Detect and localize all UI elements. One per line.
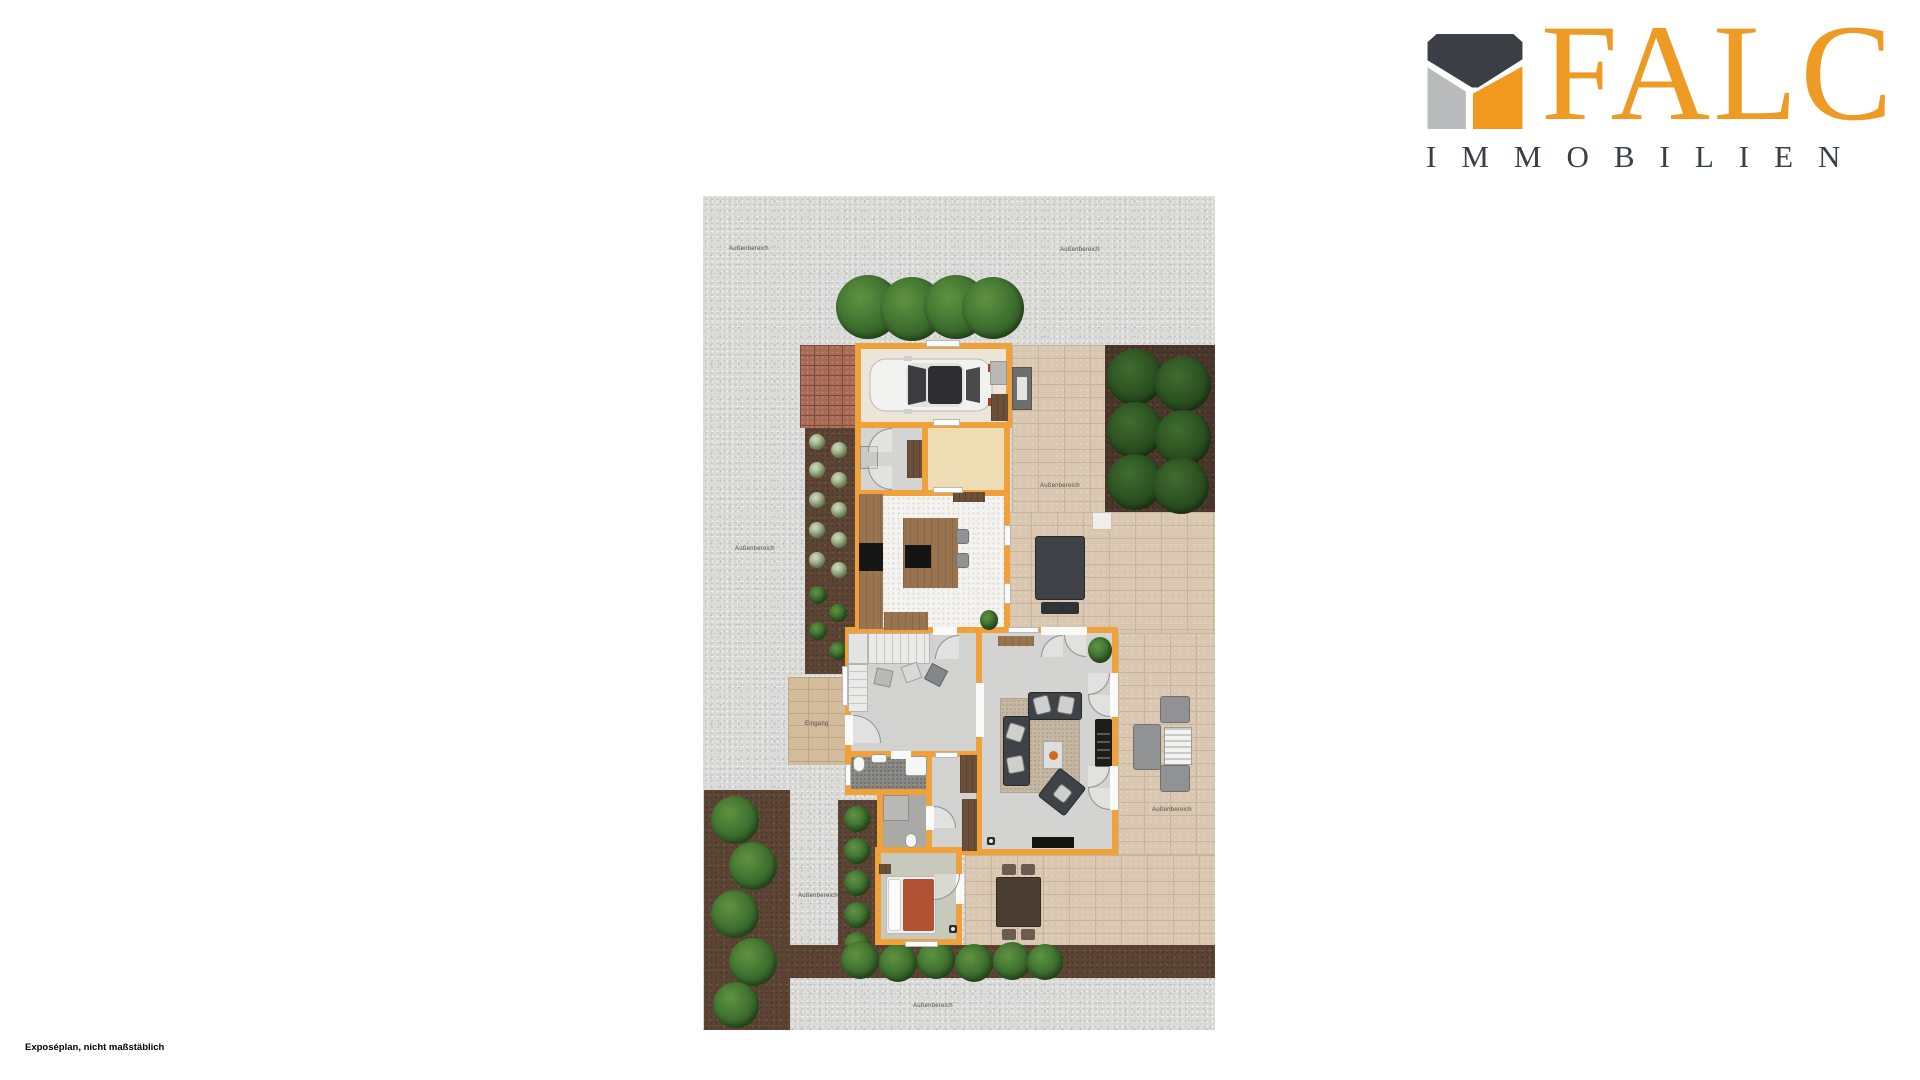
garden-bush-small bbox=[844, 870, 870, 896]
flower-plant bbox=[809, 434, 825, 450]
garden-bush bbox=[729, 842, 777, 890]
doormat-center bbox=[1017, 377, 1027, 400]
window bbox=[933, 487, 963, 493]
sink bbox=[871, 754, 887, 763]
window bbox=[1008, 627, 1039, 633]
garden-bush bbox=[711, 890, 759, 938]
garden-bush bbox=[1107, 349, 1163, 405]
power-outlet bbox=[949, 925, 957, 933]
garden-plant bbox=[829, 604, 847, 622]
area-label: Außenbereich bbox=[1040, 483, 1080, 489]
staircase bbox=[848, 664, 868, 712]
flower-plant bbox=[831, 472, 847, 488]
garden-plant bbox=[809, 622, 827, 640]
area-label: Außenbereich bbox=[1060, 247, 1100, 253]
flower-plant bbox=[809, 462, 825, 478]
flower-plant bbox=[831, 442, 847, 458]
indoor-plant bbox=[1088, 637, 1112, 663]
utility-cabinet bbox=[907, 440, 922, 478]
pouf bbox=[873, 667, 893, 687]
area-label: Außenbereich bbox=[729, 246, 769, 252]
patio-white-tile bbox=[1092, 512, 1112, 530]
hall-door-opening bbox=[933, 627, 957, 635]
patio-dining-table bbox=[996, 877, 1041, 927]
patio-chair bbox=[1021, 864, 1035, 875]
window bbox=[842, 666, 848, 706]
window bbox=[935, 752, 958, 758]
patio-chair bbox=[1021, 929, 1035, 940]
flower-plant bbox=[809, 552, 825, 568]
lounge-chair bbox=[1160, 765, 1190, 792]
front-door-opening bbox=[845, 715, 853, 745]
bath-door-opening bbox=[891, 751, 911, 759]
hall-living-opening bbox=[976, 683, 984, 737]
kitchen-sideboard bbox=[884, 612, 928, 630]
car bbox=[868, 356, 994, 414]
entrance-label: Eingang bbox=[805, 721, 828, 727]
garden-plant bbox=[809, 586, 827, 604]
patio-chair bbox=[1002, 864, 1016, 875]
lounge-table bbox=[1164, 727, 1192, 765]
hedge-bush bbox=[841, 941, 879, 979]
window bbox=[845, 764, 851, 786]
area-label: Außenbereich bbox=[798, 893, 838, 899]
window bbox=[1004, 583, 1011, 604]
power-outlet bbox=[987, 837, 995, 845]
flower-plant bbox=[809, 522, 825, 538]
garden-bush bbox=[1153, 458, 1209, 514]
terrace-door-opening bbox=[1110, 673, 1118, 717]
decor-bowl bbox=[1049, 751, 1058, 760]
wardrobe bbox=[960, 755, 977, 793]
logo-name: FALC bbox=[1541, 4, 1896, 142]
falc-logo-icon bbox=[1422, 31, 1528, 132]
area-label: Außenbereich bbox=[1152, 807, 1192, 813]
tv-lowboard bbox=[1032, 837, 1074, 848]
flower-plant bbox=[831, 502, 847, 518]
indoor-plant bbox=[980, 610, 998, 630]
toilet bbox=[853, 756, 865, 772]
logo-subtitle: IMMOBILIEN bbox=[1426, 139, 1865, 175]
hedge-bush bbox=[993, 942, 1031, 980]
nightstand bbox=[879, 864, 891, 874]
area-label: Außenbereich bbox=[735, 546, 775, 552]
shower bbox=[905, 756, 927, 776]
bed-pillows bbox=[888, 879, 901, 931]
outdoor-table-dark bbox=[1035, 536, 1085, 600]
window bbox=[926, 340, 960, 347]
room-storage bbox=[922, 422, 1010, 496]
toilet bbox=[905, 833, 917, 848]
area-label: Außenbereich bbox=[913, 1003, 953, 1009]
window bbox=[1004, 525, 1011, 546]
lounge-chair bbox=[1160, 696, 1190, 723]
sofa-cushion bbox=[1057, 695, 1076, 716]
stairs-landing bbox=[848, 633, 868, 664]
patio-chair bbox=[1002, 929, 1016, 940]
garden-bush bbox=[729, 938, 777, 986]
terrace-door-opening bbox=[1110, 766, 1118, 810]
hedge-bush bbox=[955, 944, 993, 982]
wardrobe bbox=[962, 799, 977, 851]
footer-note: Exposéplan, nicht maßstäblich bbox=[25, 1042, 164, 1053]
hedge-bush bbox=[962, 277, 1024, 339]
living-sideboard bbox=[998, 636, 1034, 646]
flower-plant bbox=[831, 562, 847, 578]
bath2-door-opening bbox=[926, 806, 934, 830]
garden-bush-small bbox=[844, 806, 870, 832]
garage-shelf bbox=[990, 361, 1007, 385]
window bbox=[933, 419, 960, 426]
dining-chair bbox=[956, 529, 969, 544]
brick-driveway bbox=[800, 345, 857, 428]
garden-bush-small bbox=[844, 902, 870, 928]
garden-bush bbox=[1155, 356, 1211, 412]
garage-cabinet bbox=[991, 394, 1008, 421]
flower-plant bbox=[831, 532, 847, 548]
shower bbox=[883, 795, 909, 821]
hedge-bush bbox=[1027, 944, 1063, 980]
outdoor-bench bbox=[1041, 602, 1079, 614]
garden-bush bbox=[711, 796, 759, 844]
kitchen-shelf bbox=[953, 492, 985, 502]
window bbox=[905, 941, 938, 947]
kitchen-stove bbox=[859, 543, 883, 571]
flower-plant bbox=[809, 492, 825, 508]
garden-bush bbox=[1107, 402, 1163, 458]
terrace-door-opening bbox=[1041, 627, 1087, 635]
lounge-sofa bbox=[1133, 724, 1161, 770]
site-plan: Außenbereich Außenbereich Außenbereich A… bbox=[703, 196, 1215, 1030]
garden-bush bbox=[713, 982, 759, 1028]
hedge-bush bbox=[879, 944, 917, 982]
dining-chair bbox=[956, 553, 969, 568]
fireplace-legs bbox=[1097, 727, 1110, 759]
sofa-cushion bbox=[1006, 755, 1026, 775]
bed-blanket bbox=[903, 879, 934, 931]
staircase bbox=[868, 633, 930, 664]
island-cooktop bbox=[905, 545, 931, 568]
garden-bush-small bbox=[844, 838, 870, 864]
